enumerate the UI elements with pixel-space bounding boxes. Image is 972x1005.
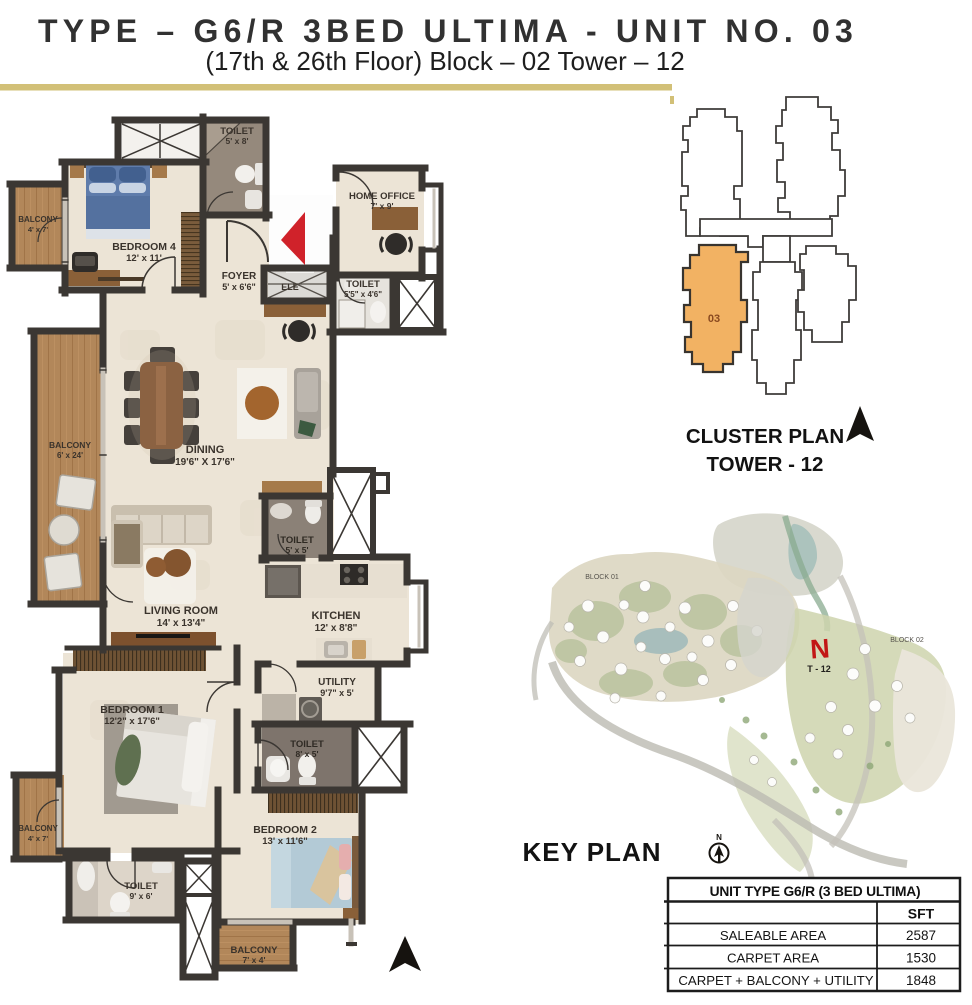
svg-text:LIVING ROOM: LIVING ROOM <box>144 605 218 617</box>
svg-text:N: N <box>809 633 831 664</box>
svg-text:5' x 8': 5' x 8' <box>226 136 249 146</box>
svg-text:13' x 11'6": 13' x 11'6" <box>262 836 307 847</box>
svg-text:9' x 6': 9' x 6' <box>130 891 153 901</box>
svg-text:8' x 5': 8' x 5' <box>296 749 319 759</box>
svg-text:BEDROOM 1: BEDROOM 1 <box>100 704 164 716</box>
svg-text:UTILITY: UTILITY <box>318 677 356 688</box>
svg-text:FOYER: FOYER <box>222 271 257 282</box>
svg-text:BALCONY: BALCONY <box>49 440 91 450</box>
svg-text:T - 12: T - 12 <box>807 664 831 674</box>
svg-text:(17th & 26th Floor) Block – 02: (17th & 26th Floor) Block – 02 Tower – 1… <box>205 46 684 76</box>
svg-text:N: N <box>716 833 722 842</box>
svg-text:ELE: ELE <box>281 282 299 292</box>
svg-text:SALEABLE AREA: SALEABLE AREA <box>720 928 826 943</box>
svg-text:CARPET AREA: CARPET AREA <box>727 951 819 966</box>
svg-text:7' x 9': 7' x 9' <box>371 201 394 211</box>
svg-text:1530: 1530 <box>906 951 936 966</box>
svg-text:BEDROOM 2: BEDROOM 2 <box>253 824 317 836</box>
svg-text:4' x 7': 4' x 7' <box>28 834 48 843</box>
svg-text:BALCONY: BALCONY <box>18 215 58 224</box>
svg-text:SFT: SFT <box>908 906 935 922</box>
svg-text:KEY PLAN: KEY PLAN <box>523 837 662 867</box>
svg-text:BEDROOM 4: BEDROOM 4 <box>112 241 176 253</box>
svg-text:BLOCK 02: BLOCK 02 <box>890 637 924 644</box>
svg-text:CARPET + BALCONY + UTILITY: CARPET + BALCONY + UTILITY <box>678 973 873 988</box>
svg-text:CLUSTER PLAN: CLUSTER PLAN <box>686 425 844 448</box>
svg-text:2587: 2587 <box>906 928 936 943</box>
svg-text:BALCONY: BALCONY <box>18 824 58 833</box>
svg-text:1848: 1848 <box>906 973 936 988</box>
svg-text:9'7" x 5': 9'7" x 5' <box>320 688 354 698</box>
svg-text:14' x 13'4": 14' x 13'4" <box>157 618 206 629</box>
svg-text:12' x 11': 12' x 11' <box>126 253 162 264</box>
svg-text:KITCHEN: KITCHEN <box>312 610 361 622</box>
svg-text:TOILET: TOILET <box>346 279 380 290</box>
svg-text:5' x 6'6": 5' x 6'6" <box>222 282 256 292</box>
svg-text:DINING: DINING <box>186 444 225 456</box>
svg-text:TYPE – G6/R 3BED ULTIMA - UNIT: TYPE – G6/R 3BED ULTIMA - UNIT NO. 03 <box>38 13 858 49</box>
svg-text:12' x 8'8": 12' x 8'8" <box>315 623 358 634</box>
svg-text:UNIT TYPE G6/R (3 BED ULTIMA): UNIT TYPE G6/R (3 BED ULTIMA) <box>710 884 921 899</box>
svg-text:7' x 4': 7' x 4' <box>243 955 266 965</box>
svg-text:5' x 5': 5' x 5' <box>286 545 309 555</box>
svg-text:TOWER - 12: TOWER - 12 <box>707 453 824 476</box>
svg-text:03: 03 <box>708 313 720 325</box>
svg-text:12'2" x 17'6": 12'2" x 17'6" <box>104 716 160 727</box>
svg-text:4' x 7': 4' x 7' <box>28 225 48 234</box>
svg-text:19'6" X 17'6": 19'6" X 17'6" <box>175 457 235 468</box>
svg-text:6' x 24': 6' x 24' <box>57 451 83 460</box>
svg-text:5'5" x 4'6": 5'5" x 4'6" <box>344 290 382 299</box>
svg-text:BLOCK 01: BLOCK 01 <box>585 574 619 581</box>
